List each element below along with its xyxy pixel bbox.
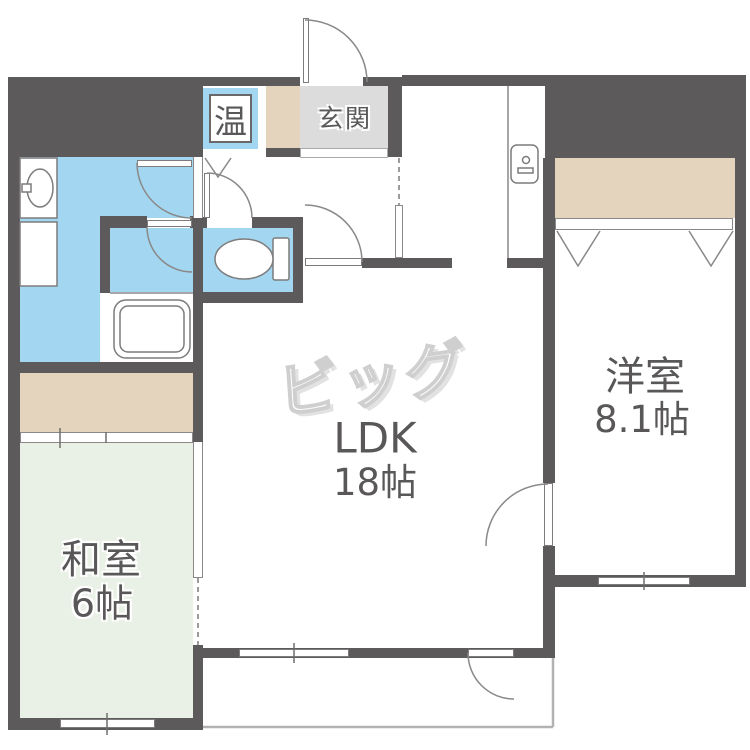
japanese-room-size-label: 6帖 <box>71 573 133 628</box>
toilet-door-leaf <box>204 173 210 218</box>
wall-bath-right <box>193 303 203 442</box>
water-heater-label-box: 温 <box>209 94 252 143</box>
utility-plate-handle-icon <box>518 168 533 173</box>
wall-powder-top-a <box>100 216 147 228</box>
wall-toilet-bottom <box>193 292 303 303</box>
balcony-outline <box>203 658 553 727</box>
folding-door-mark-1 <box>557 231 600 266</box>
ldk-size-label: 18帖 <box>333 452 417 506</box>
utility-door-plate-icon <box>511 145 538 183</box>
balcony-door-arc <box>468 653 514 699</box>
oshiire-closet <box>20 373 193 432</box>
sliding-door-japanese <box>193 442 203 578</box>
partition-washroom-hall <box>193 157 203 218</box>
wall-top-c <box>402 75 545 86</box>
western-room-closet <box>555 158 735 218</box>
wall-bath-bottom <box>20 362 193 373</box>
toilet-door-arc <box>207 173 252 218</box>
wall-japanese-right-lower <box>193 645 203 718</box>
wall-right-outer <box>735 158 746 587</box>
washroom-area-left <box>20 218 100 362</box>
western-closet-door <box>555 218 733 230</box>
wall-toilet-top-a <box>203 217 207 228</box>
wall-toilet-right <box>293 217 303 303</box>
washroom-door-leaf <box>137 160 192 167</box>
toilet-room <box>203 228 293 292</box>
partition-hall-ldk <box>395 205 403 258</box>
wall-entrance-right <box>388 77 402 157</box>
wall-top-right-block <box>545 75 746 158</box>
wall-western-left-lower <box>543 546 555 658</box>
hall-ldk-door-leaf <box>305 258 362 266</box>
entrance-door-leaf <box>303 18 309 83</box>
balcony-door-leaf <box>468 649 514 657</box>
wall-shoe-cabinet-bottom <box>266 148 300 157</box>
shoe-cabinet <box>266 86 300 148</box>
window-ldk <box>239 649 349 657</box>
folding-door-mark-2 <box>689 231 733 266</box>
entrance-door-arc <box>305 20 367 82</box>
wall-top-a <box>203 77 300 86</box>
wall-top-left-block <box>8 77 203 157</box>
wall-toilet-left <box>193 218 203 293</box>
western-room-size-label: 8.1帖 <box>594 389 690 443</box>
wall-hall-ldk-b <box>507 258 545 268</box>
floor-plan: ビッグ 温 玄関 LDK 18帖 洋室 8.1帖 和室 6帖 <box>0 0 750 750</box>
window-western <box>598 577 690 585</box>
hall-ldk-door-arc <box>305 205 362 262</box>
entrance-label: 玄関 <box>318 99 372 135</box>
powder-room <box>110 228 193 292</box>
western-door-arc <box>486 484 548 546</box>
wall-left-outer <box>8 157 20 718</box>
entrance-step <box>300 148 388 158</box>
powder-door-leaf <box>147 220 192 227</box>
utility-plate-knob-icon <box>523 157 530 164</box>
water-heater-label: 温 <box>214 95 247 143</box>
wall-hall-ldk-a <box>362 258 452 268</box>
window-japanese <box>60 719 155 728</box>
wall-western-left-upper <box>543 158 555 483</box>
oshiire-door <box>20 432 193 443</box>
western-door-leaf <box>544 483 553 546</box>
bathroom <box>110 293 193 362</box>
